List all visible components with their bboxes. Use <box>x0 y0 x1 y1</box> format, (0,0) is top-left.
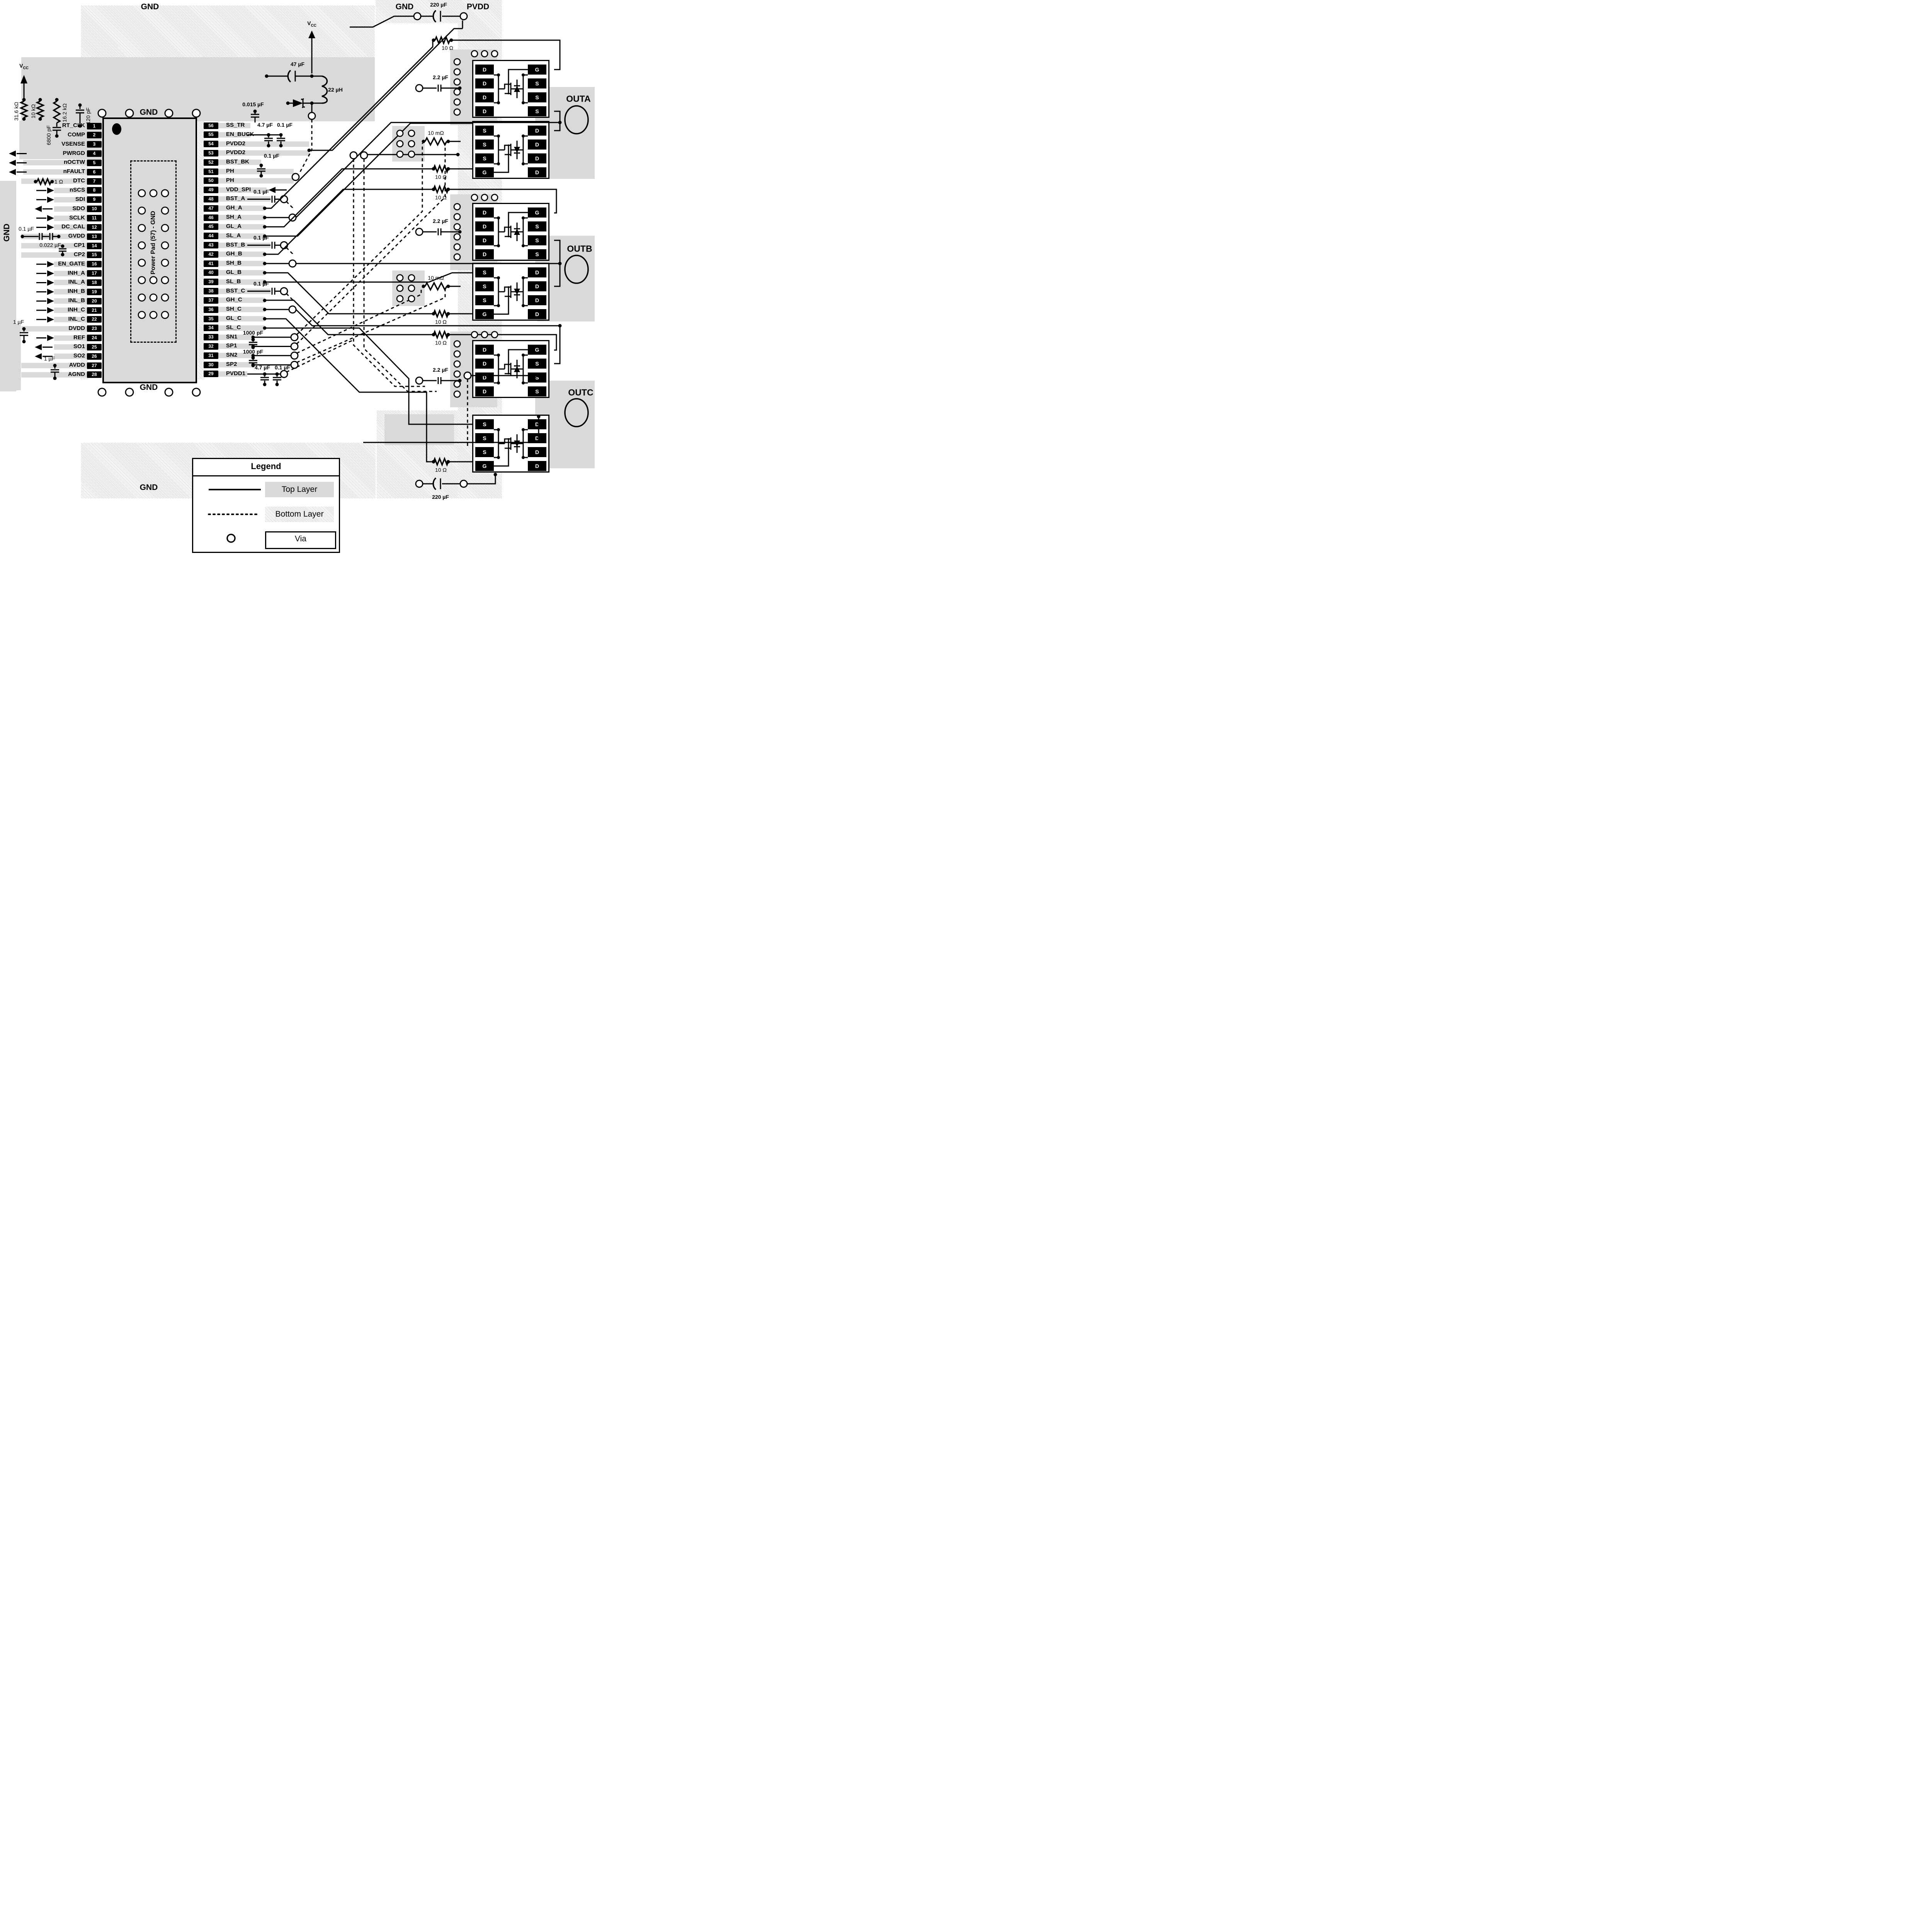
cap-0022uf-label: 0.022 µF <box>39 242 61 248</box>
cap-220uf-top-label: 220 µF <box>430 2 447 8</box>
via-icon <box>454 381 460 387</box>
resistor-icon <box>21 101 27 117</box>
trace-top-layer <box>554 264 560 286</box>
via-icon <box>162 277 168 284</box>
polar-cap-curved-plate <box>433 10 436 22</box>
via-icon <box>454 351 460 357</box>
via-icon <box>454 371 460 377</box>
junction-dot <box>260 174 263 178</box>
cap-01uf-bsta-label: 0.1 µF <box>253 189 269 195</box>
junction-dot <box>537 415 541 418</box>
via-icon <box>138 277 145 284</box>
via-icon <box>289 260 296 267</box>
signal-in-arrow-icon <box>47 224 54 230</box>
cap-1uf-dvdd-label: 1 µF <box>13 319 24 325</box>
cap-47uf-label: 47 µF <box>291 61 304 67</box>
via-icon <box>138 190 145 197</box>
junction-dot <box>456 153 460 156</box>
legend-row-via: Via <box>193 526 339 551</box>
via-icon <box>454 69 460 75</box>
outa-label: OUTA <box>566 94 590 104</box>
r10-2-label: 10 Ω <box>435 174 447 180</box>
signal-in-arrow-icon <box>47 270 54 277</box>
trace-top-layer <box>494 218 498 246</box>
junction-dot <box>61 253 65 257</box>
legend-via-label: Via <box>265 531 336 549</box>
junction-dot <box>497 101 500 104</box>
signal-out-arrow-icon <box>9 151 16 157</box>
via-icon <box>416 377 423 384</box>
resistor-icon <box>37 101 43 117</box>
via-icon <box>492 194 498 201</box>
junction-dot <box>522 216 525 219</box>
via-icon <box>471 332 478 338</box>
via-icon <box>481 194 488 201</box>
gnd-below-ic: GND <box>140 383 158 392</box>
signal-in-arrow-icon <box>47 187 54 194</box>
via-icon <box>454 391 460 397</box>
junction-dot <box>497 354 500 357</box>
trace-top-layer <box>523 218 528 246</box>
via-icon <box>150 311 157 318</box>
r-1ohm-label: 1 Ω <box>54 179 63 185</box>
cap-1000pf-2-label: 1000 pF <box>243 349 263 355</box>
junction-dot <box>522 244 525 247</box>
via-icon <box>126 109 133 117</box>
junction-dot <box>522 162 525 165</box>
via-icon <box>397 296 403 302</box>
pin1-marker-icon <box>112 123 121 135</box>
signal-in-arrow-icon <box>47 261 54 267</box>
junction-dot <box>39 98 42 102</box>
via-icon <box>492 332 498 338</box>
r10-4-label: 10 Ω <box>435 319 447 325</box>
junction-dot <box>497 162 500 165</box>
via-icon <box>98 109 106 117</box>
via-icon <box>481 51 488 57</box>
junction-dot <box>522 101 525 104</box>
gnd-above-ic: GND <box>140 108 158 117</box>
cap-47uf-pvdd1-label: 4.7 µF <box>255 364 270 371</box>
signal-out-arrow-icon <box>9 169 16 175</box>
via-icon <box>460 480 467 487</box>
via-icon <box>408 275 415 281</box>
signal-out-arrow-icon <box>269 187 276 193</box>
inductor-icon <box>322 76 327 103</box>
via-icon <box>408 130 415 136</box>
resistor-icon <box>37 179 51 184</box>
via-icon <box>454 254 460 260</box>
cap-01uf-buck-label: 0.1 µF <box>277 122 293 128</box>
gnd-label-top-right: GND <box>396 2 414 12</box>
via-icon <box>138 294 145 301</box>
cap-22uf-b-label: 2.2 µF <box>433 218 448 224</box>
polar-cap-curved-plate <box>433 478 436 490</box>
via-icon <box>408 151 415 157</box>
junction-dot <box>494 473 497 476</box>
junction-dot <box>267 144 270 148</box>
resistor-icon <box>435 37 450 43</box>
via-icon <box>192 109 200 117</box>
via-icon <box>162 242 168 249</box>
trace-top-layer <box>363 417 539 442</box>
trace-top-layer <box>494 145 509 172</box>
legend-bottom-layer-label: Bottom Layer <box>265 507 334 522</box>
junction-dot <box>286 102 290 105</box>
legend-title: Legend <box>193 459 339 476</box>
via-icon <box>162 224 168 231</box>
via-icon <box>98 388 106 396</box>
junction-dot <box>497 304 500 307</box>
junction-dot <box>55 134 59 138</box>
junction-dot <box>279 144 283 148</box>
resistor-icon <box>434 166 448 172</box>
junction-dot <box>497 244 500 247</box>
cap-01uf-gvdd-label: 0.1 µF <box>19 226 34 232</box>
junction-dot <box>497 276 500 279</box>
vcc-arrow-icon <box>308 31 315 38</box>
junction-dot <box>497 428 500 431</box>
schottky-diode-icon <box>293 99 303 107</box>
via-icon <box>138 311 145 318</box>
trace-top-layer <box>494 75 498 103</box>
via-icon <box>138 242 145 249</box>
r10-3-label: 10 Ω <box>435 194 447 201</box>
trace-top-layer <box>523 355 528 383</box>
junction-dot <box>22 98 26 102</box>
trace-top-layer <box>505 227 511 232</box>
via-icon <box>454 109 460 115</box>
via-icon <box>454 244 460 250</box>
via-icon <box>308 112 315 119</box>
via-icon <box>162 207 168 214</box>
bottom-layer-line-sample <box>193 501 263 526</box>
trace-top-layer <box>505 287 511 292</box>
trace-top-layer <box>509 213 528 226</box>
trace-top-layer <box>302 107 305 108</box>
signal-out-arrow-icon <box>35 353 42 359</box>
trace-top-layer <box>505 84 511 89</box>
trace-top-layer <box>494 430 498 457</box>
signal-in-arrow-icon <box>47 197 54 203</box>
cap-01uf-bstb-label: 0.1 µF <box>253 235 269 241</box>
signal-in-arrow-icon <box>47 316 54 323</box>
junction-dot <box>497 456 500 459</box>
signal-in-arrow-icon <box>47 289 54 295</box>
legend-row-top-layer: Top Layer <box>193 476 339 501</box>
via-icon <box>138 207 145 214</box>
rshunt-b-label: 10 mΩ <box>428 275 444 281</box>
signal-out-arrow-icon <box>9 160 16 166</box>
via-icon <box>471 194 478 201</box>
cap-01uf-bstc-label: 0.1 µF <box>253 281 269 287</box>
via-icon <box>454 59 460 65</box>
trace-top-layer <box>494 286 509 314</box>
resistor-icon <box>434 186 448 192</box>
junction-dot <box>422 140 425 143</box>
trace-top-layer <box>554 240 560 264</box>
trace-top-layer <box>448 335 556 350</box>
r10-6-label: 10 Ω <box>435 467 447 473</box>
cap-220uf-bottom-label: 220 µF <box>432 494 449 500</box>
via-icon <box>416 480 423 487</box>
r10-1-label: 10 Ω <box>442 45 453 51</box>
cap-1000pf-1-label: 1000 pF <box>243 330 263 336</box>
via-icon <box>454 79 460 85</box>
trace-top-layer <box>301 99 304 99</box>
resistor-icon <box>425 138 447 145</box>
junction-dot <box>522 354 525 357</box>
resistor-icon <box>434 332 448 338</box>
via-icon <box>454 204 460 210</box>
junction-dot <box>497 381 500 384</box>
junction-dot <box>522 428 525 431</box>
via-icon <box>150 294 157 301</box>
outb-label: OUTB <box>567 244 592 254</box>
junction-dot <box>458 230 462 234</box>
via-icon <box>289 306 296 313</box>
cap-1uf-avdd-label: 1 µF <box>44 355 55 362</box>
trace-top-layer <box>494 136 498 164</box>
resistor-icon <box>54 101 60 123</box>
gnd-left-vertical: GND <box>2 224 12 242</box>
junction-dot <box>22 340 26 344</box>
trace-top-layer <box>509 70 528 83</box>
pvdd-label-top: PVDD <box>467 2 489 12</box>
trace-top-layer <box>467 474 495 484</box>
via-icon <box>416 228 423 235</box>
via-icon <box>162 311 168 318</box>
via-icon <box>291 334 298 341</box>
via-icon <box>162 259 168 266</box>
junction-dot <box>310 75 314 78</box>
trace-top-layer <box>505 364 511 369</box>
via-icon <box>397 285 403 291</box>
trace-top-layer <box>494 355 498 383</box>
signal-in-arrow-icon <box>47 307 54 313</box>
via-icon <box>397 151 403 157</box>
signal-in-arrow-icon <box>47 279 54 286</box>
via-icon <box>162 294 168 301</box>
via-icon <box>350 152 357 159</box>
junction-dot <box>522 381 525 384</box>
legend: Legend Top Layer Bottom Layer Via <box>192 458 340 553</box>
junction-dot <box>536 374 539 378</box>
via-icon <box>138 259 145 266</box>
via-sample-icon <box>193 526 263 551</box>
via-icon <box>150 190 157 197</box>
junction-dot <box>51 180 54 184</box>
via-icon <box>454 214 460 220</box>
via-icon <box>454 361 460 367</box>
trace-top-layer <box>523 75 528 103</box>
vcc-label-left: VCC <box>19 63 29 70</box>
legend-row-bottom-layer: Bottom Layer <box>193 501 339 526</box>
via-icon <box>464 372 471 379</box>
top-layer-line-sample <box>193 476 263 501</box>
trace-top-layer <box>350 16 414 27</box>
outb-pad-icon <box>565 255 588 283</box>
cap-47uf-buck-label: 4.7 µF <box>257 122 273 128</box>
trace-bottom-layer <box>286 248 293 256</box>
junction-dot <box>522 276 525 279</box>
trace-top-layer <box>509 350 528 364</box>
outc-pad-icon <box>565 399 588 427</box>
cap-22uf-a-label: 2.2 µF <box>433 74 448 80</box>
vcc-label-mid: VCC <box>307 20 316 28</box>
via-icon <box>416 85 423 92</box>
junction-dot <box>522 304 525 307</box>
signal-out-arrow-icon <box>35 344 42 350</box>
r-16k2-label: 16.2 kΩ <box>61 104 68 122</box>
r-10k-label: 10 kΩ <box>30 104 36 119</box>
trace-top-layer <box>265 300 434 335</box>
resistor-icon <box>434 311 448 317</box>
junction-dot <box>522 456 525 459</box>
via-icon <box>471 51 478 57</box>
power-pad-label: Power Pad (57) - GND <box>150 211 157 274</box>
trace-top-layer <box>523 136 528 164</box>
resistor-icon <box>425 283 447 290</box>
via-icon <box>126 388 133 396</box>
c-120pf-label: 120 pF <box>85 107 91 124</box>
junction-dot <box>497 134 500 138</box>
trace-bottom-layer <box>286 294 293 302</box>
junction-dot <box>497 73 500 77</box>
cap-22uf-c-label: 2.2 µF <box>433 367 448 373</box>
via-icon <box>454 234 460 240</box>
trace-bottom-layer <box>299 119 312 173</box>
outa-pad-icon <box>565 106 588 134</box>
trace-top-layer <box>523 430 528 457</box>
junction-dot <box>39 117 42 121</box>
via-icon <box>150 277 157 284</box>
rshunt-a-label: 10 mΩ <box>428 130 444 136</box>
signal-in-arrow-icon <box>47 335 54 341</box>
via-icon <box>454 341 460 347</box>
junction-dot <box>522 73 525 77</box>
via-icon <box>454 224 460 230</box>
junction-dot <box>497 216 500 219</box>
trace-top-layer <box>265 189 434 254</box>
trace-bottom-layer <box>354 159 425 386</box>
via-icon <box>397 130 403 136</box>
junction-dot <box>55 98 59 102</box>
via-icon <box>138 224 145 231</box>
via-icon <box>454 99 460 105</box>
via-icon <box>408 285 415 291</box>
junction-dot <box>22 117 26 121</box>
junction-dot <box>34 180 37 184</box>
via-icon <box>460 13 467 20</box>
gnd-label-top: GND <box>141 2 159 12</box>
trace-top-layer <box>494 278 498 306</box>
via-icon <box>414 13 421 20</box>
r-31k6-label: 31.6 kΩ <box>13 102 19 121</box>
junction-dot <box>53 377 57 380</box>
trace-top-layer <box>296 310 560 326</box>
via-icon <box>292 173 299 180</box>
trace-bottom-layer <box>297 286 447 362</box>
pcb-layout-diagram: DDDDGSSSSSSGDDDDDDDDGSSSSSSGDDDDDDDDGSSS… <box>0 0 595 553</box>
trace-bottom-layer <box>297 286 423 353</box>
legend-top-layer-label: Top Layer <box>265 482 334 497</box>
ind-22uh-label: 22 µH <box>328 87 343 93</box>
trace-top-layer <box>554 111 560 122</box>
signal-out-arrow-icon <box>35 206 42 212</box>
via-icon <box>165 388 173 396</box>
via-icon <box>408 141 415 147</box>
via-icon <box>361 152 367 159</box>
junction-dot <box>78 124 82 128</box>
cap-0015-label: 0.015 µF <box>242 101 264 107</box>
trace-top-layer <box>523 278 528 306</box>
trace-bottom-layer <box>286 202 293 211</box>
via-icon <box>397 141 403 147</box>
via-icon <box>165 109 173 117</box>
outc-label: OUTC <box>568 388 593 398</box>
cap-01uf-bstbk-label: 0.1 µF <box>264 153 279 159</box>
signal-in-arrow-icon <box>47 215 54 221</box>
trace-top-layer <box>296 122 560 218</box>
via-icon <box>162 190 168 197</box>
via-icon <box>481 332 488 338</box>
via-icon <box>492 51 498 57</box>
signal-in-arrow-icon <box>47 298 54 304</box>
polar-cap-curved-plate <box>288 70 291 82</box>
junction-dot <box>57 235 61 238</box>
junction-dot <box>276 383 279 386</box>
trace-top-layer <box>505 145 511 150</box>
vcc-arrow-icon <box>20 75 27 83</box>
r10-5-label: 10 Ω <box>435 340 447 346</box>
gnd-bottom-left: GND <box>140 483 158 492</box>
trace-top-layer <box>450 40 560 70</box>
c-6800pf-label: 6800 pF <box>46 125 52 145</box>
junction-dot <box>522 134 525 138</box>
junction-dot <box>263 383 267 386</box>
resistor-icon <box>434 459 448 465</box>
via-icon <box>397 275 403 281</box>
trace-top-layer <box>265 319 434 462</box>
junction-dot <box>432 39 435 42</box>
via-icon <box>192 388 200 396</box>
via-icon <box>454 89 460 95</box>
junction-dot <box>422 285 425 288</box>
cap-01uf-pvdd1-label: 0.1 µF <box>275 364 290 371</box>
via-icon <box>408 296 415 302</box>
trace-top-layer <box>448 189 556 213</box>
